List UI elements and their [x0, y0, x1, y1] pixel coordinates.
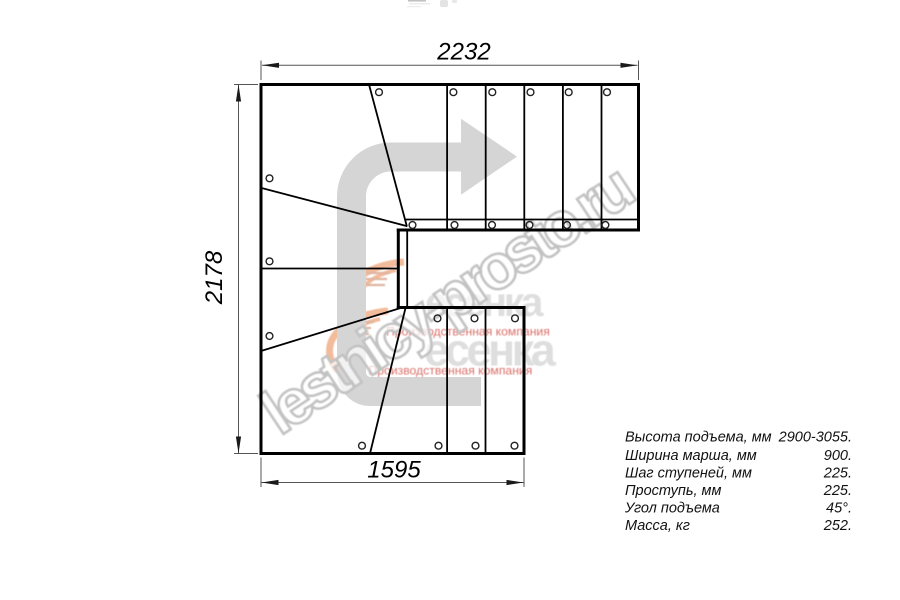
- svg-text:45°.: 45°.: [826, 501, 852, 517]
- svg-text:252.: 252.: [823, 518, 852, 534]
- svg-text:225.: 225.: [823, 466, 852, 482]
- svg-text:Ширина марша, мм: Ширина марша, мм: [625, 448, 757, 464]
- svg-text:2178: 2178: [201, 250, 228, 305]
- svg-text:225.: 225.: [823, 483, 852, 499]
- svg-text:Масса, кг: Масса, кг: [625, 518, 690, 534]
- svg-text:1595: 1595: [367, 457, 421, 484]
- svg-text:900.: 900.: [824, 448, 852, 464]
- svg-text:Шаг ступеней, мм: Шаг ступеней, мм: [625, 466, 752, 482]
- svg-text:2232: 2232: [436, 39, 490, 66]
- svg-text:2900-3055.: 2900-3055.: [778, 430, 852, 446]
- svg-text:Высота подъема, мм: Высота подъема, мм: [625, 430, 772, 446]
- svg-text:Проступь, мм: Проступь, мм: [625, 483, 721, 499]
- svg-text:Угол подъема: Угол подъема: [624, 501, 720, 517]
